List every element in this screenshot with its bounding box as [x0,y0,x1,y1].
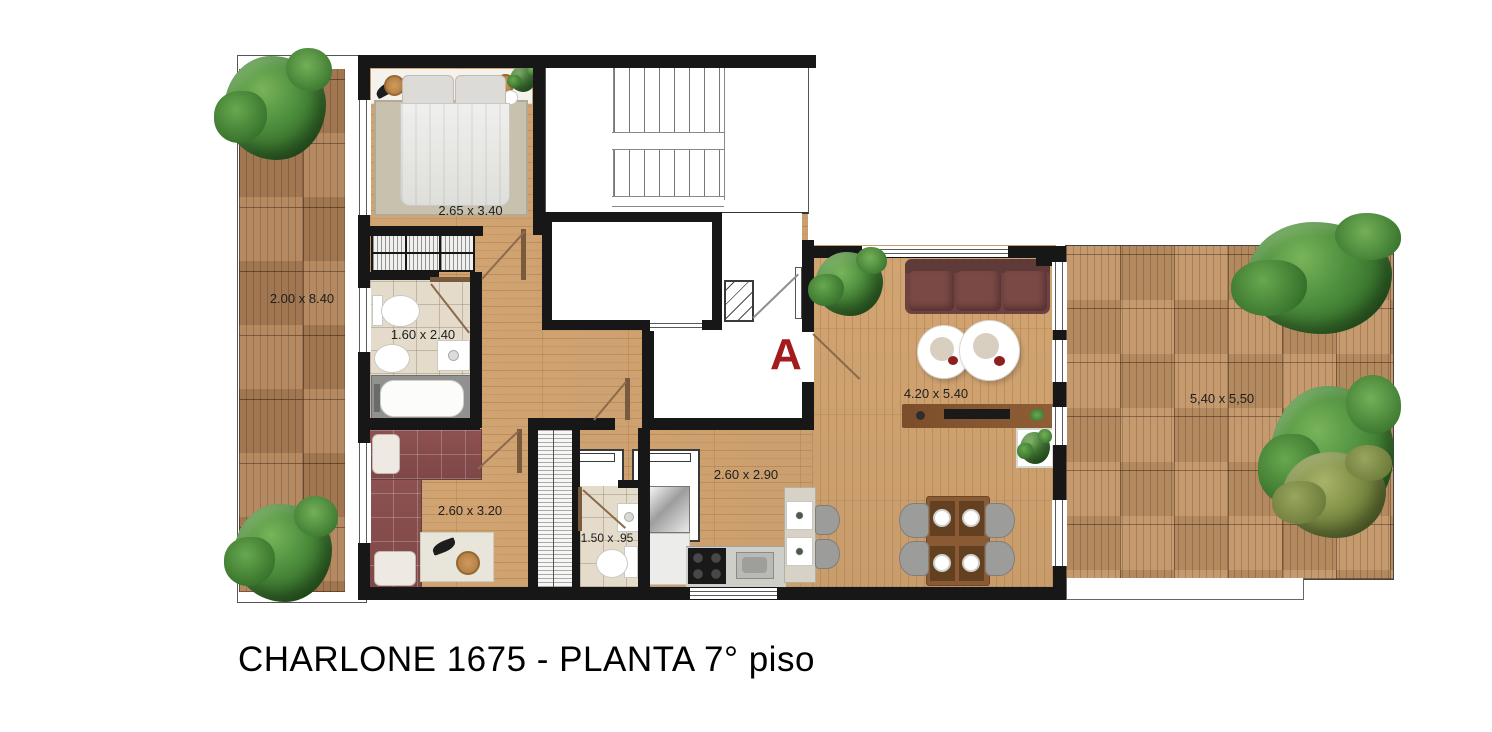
window-living-right-2 [1052,340,1067,382]
sofa-cushion [909,271,954,311]
plan-title: CHARLONE 1675 - PLANTA 7° piso [238,640,815,680]
stair-edge [612,196,724,207]
bathtub [371,375,472,422]
window-bedroom2 [356,443,371,543]
pot-plant [1020,432,1050,464]
tree-terrace-left-top [224,56,326,160]
coffee-table-decor [973,333,999,359]
bidet [374,344,410,373]
rattan-tray-2 [456,551,480,575]
kitchen-door [625,378,630,420]
room-dimension-label: 4.20 x 5.40 [900,386,972,401]
room-dimension-label: 2.65 x 3.40 [418,203,523,218]
right-terrace-step [1066,578,1304,600]
wall-toilette-top [618,480,640,488]
placemat [930,546,955,581]
tv-decor [916,411,925,420]
bedroom2-door [517,429,522,473]
living-room-plant [815,252,883,316]
window-kitchen [690,588,777,599]
service-shaft [724,280,754,322]
bedroom-main-door [521,229,526,280]
tv-unit [902,404,1055,428]
dining-chair [899,541,929,576]
basin-drain [448,350,459,361]
island-place-setting [786,501,813,530]
room-dimension-label: 5,40 x 5,50 [1186,391,1258,406]
toilette-basin-drain [624,512,634,522]
stair-landing [612,132,724,150]
fridge [648,486,690,533]
bathtub-basin [380,380,464,417]
wall-lobby-bottom [642,418,814,430]
room-dimension-label: 2.60 x 2.90 [706,467,786,482]
sofa-cushion [956,271,1001,311]
window-bedroom-main [356,100,371,215]
window-bathroom [356,288,371,352]
placemat [959,546,984,581]
tv-plant-sprig [1030,409,1044,421]
wall-bedroom-bottom [365,226,483,236]
dining-table [926,496,990,586]
wall-top [358,55,816,68]
elevator-shaft [542,212,722,330]
placemat [930,501,955,536]
section-marker-a: A [770,330,802,380]
floor-plan: 2.00 x 8.40 2.65 x 3.40 1.60 x 2.40 2.60… [0,0,1492,732]
coffee-table-large [959,320,1020,381]
stove [688,548,726,584]
wall-bedroom2-closet [528,428,538,588]
plate [933,509,951,527]
plate [933,554,951,572]
single-bed-left-pillow [374,551,416,586]
flower-decor [948,356,958,365]
washbasin [437,340,470,371]
tree-terrace-right-olive [1282,452,1386,538]
dining-chair [985,541,1015,576]
exterior-mask [808,0,1066,245]
wall-lobby-right [802,240,814,418]
toilette-wc-bowl [596,549,628,578]
toilette-basin [617,503,640,532]
sofa-cushion [1003,271,1047,311]
wall-bedroom-stair [533,55,545,235]
kitchen-cabinet [648,533,690,585]
kitchen-sink [736,552,774,579]
dining-chair [985,503,1015,538]
terrace-door-threshold [1052,500,1067,566]
bathtub-tap [374,384,380,412]
elevator-door-sill [650,319,702,331]
double-bed [400,103,510,206]
room-dimension-label: 1.60 x 2.40 [386,327,460,342]
room-dimension-label: 2.60 x 3.20 [433,503,507,518]
wall-bath-top [365,272,439,280]
closet [534,428,572,587]
wall-toilette-right [638,428,650,588]
tree-terrace-right-top [1246,222,1392,334]
placemat [959,501,984,536]
single-bed-top-pillow [372,434,400,474]
toilette-door [578,487,582,531]
entrance-door-opening [802,332,814,382]
toilet-bowl [381,295,420,327]
wardrobe [371,234,475,272]
plate [962,509,980,527]
bathroom-door [430,277,470,282]
sofa [905,259,1050,314]
tv-screen [944,409,1010,419]
stool [815,505,840,535]
room-dimension-label: 2.00 x 8.40 [247,291,357,306]
wall-lobby-left [642,325,654,418]
island-place-setting [786,537,813,566]
plate [962,554,980,572]
sink-basin [742,557,767,573]
tree-terrace-left-bottom [234,504,332,602]
window-living-right-1 [1052,262,1067,330]
room-dimension-label: 1.50 x .95 [574,531,640,545]
stairwell [545,55,809,214]
stool [815,539,840,569]
dining-chair [899,503,929,538]
window-living-right-3 [1052,407,1067,445]
wall-mid-left [358,418,480,430]
planter-pot [1016,428,1054,468]
flower-decor [994,356,1005,366]
wall-bath-right [470,272,482,428]
